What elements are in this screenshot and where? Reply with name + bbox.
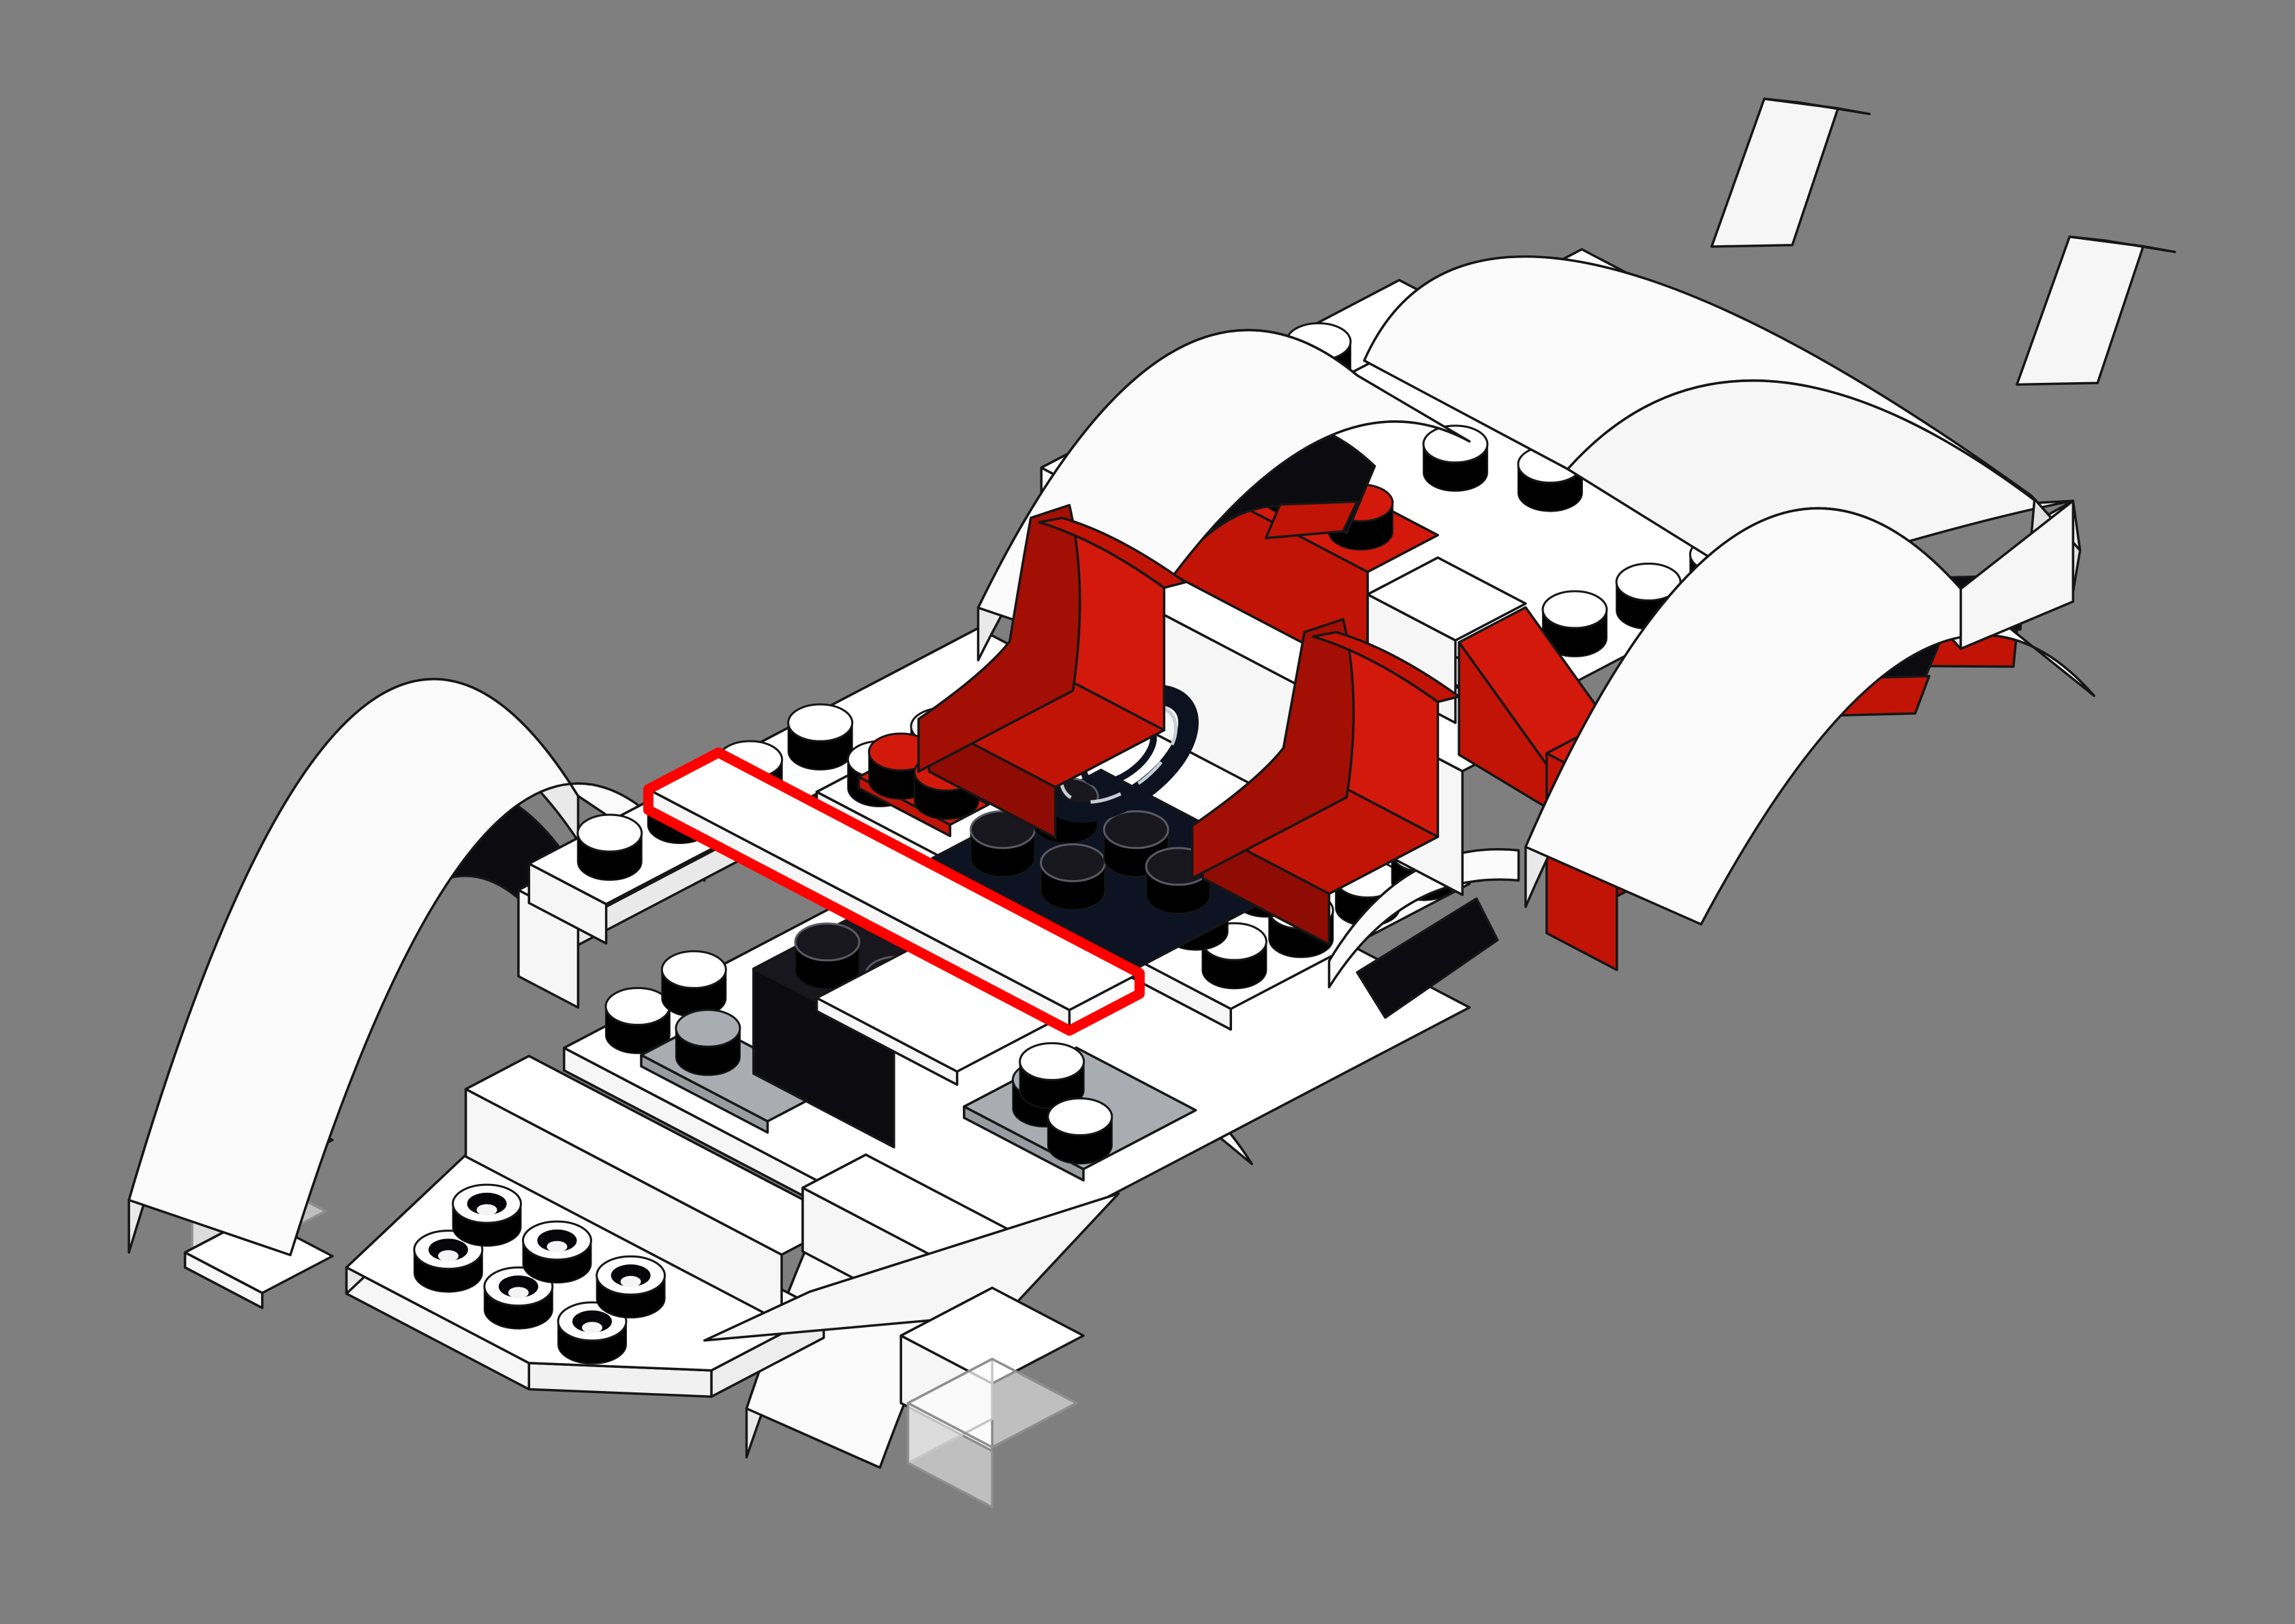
lego-model-3d-view xyxy=(0,0,2295,1624)
rear-fin-right xyxy=(2017,237,2175,385)
lego-instruction-render xyxy=(0,0,2295,1624)
rear-fin-left xyxy=(1712,99,1870,247)
